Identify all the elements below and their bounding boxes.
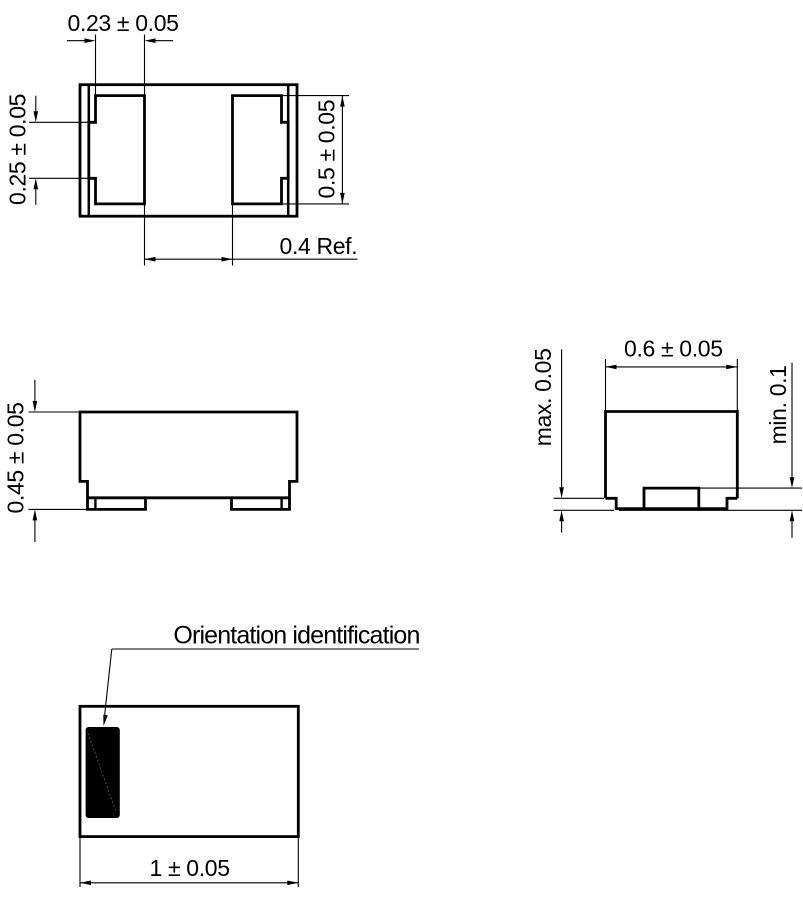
svg-text:1 ± 0.05: 1 ± 0.05 — [150, 855, 230, 881]
svg-text:Orientation identification: Orientation identification — [173, 622, 419, 650]
svg-text:0.25 ± 0.05: 0.25 ± 0.05 — [5, 94, 31, 205]
svg-text:0.4 Ref.: 0.4 Ref. — [280, 233, 358, 259]
svg-text:min. 0.1: min. 0.1 — [765, 365, 791, 444]
svg-text:0.5 ± 0.05: 0.5 ± 0.05 — [314, 100, 340, 199]
svg-text:0.6 ± 0.05: 0.6 ± 0.05 — [624, 335, 723, 361]
svg-text:0.45 ± 0.05: 0.45 ± 0.05 — [3, 402, 29, 513]
svg-text:0.23 ± 0.05: 0.23 ± 0.05 — [68, 10, 179, 36]
svg-text:max. 0.05: max. 0.05 — [530, 348, 556, 446]
